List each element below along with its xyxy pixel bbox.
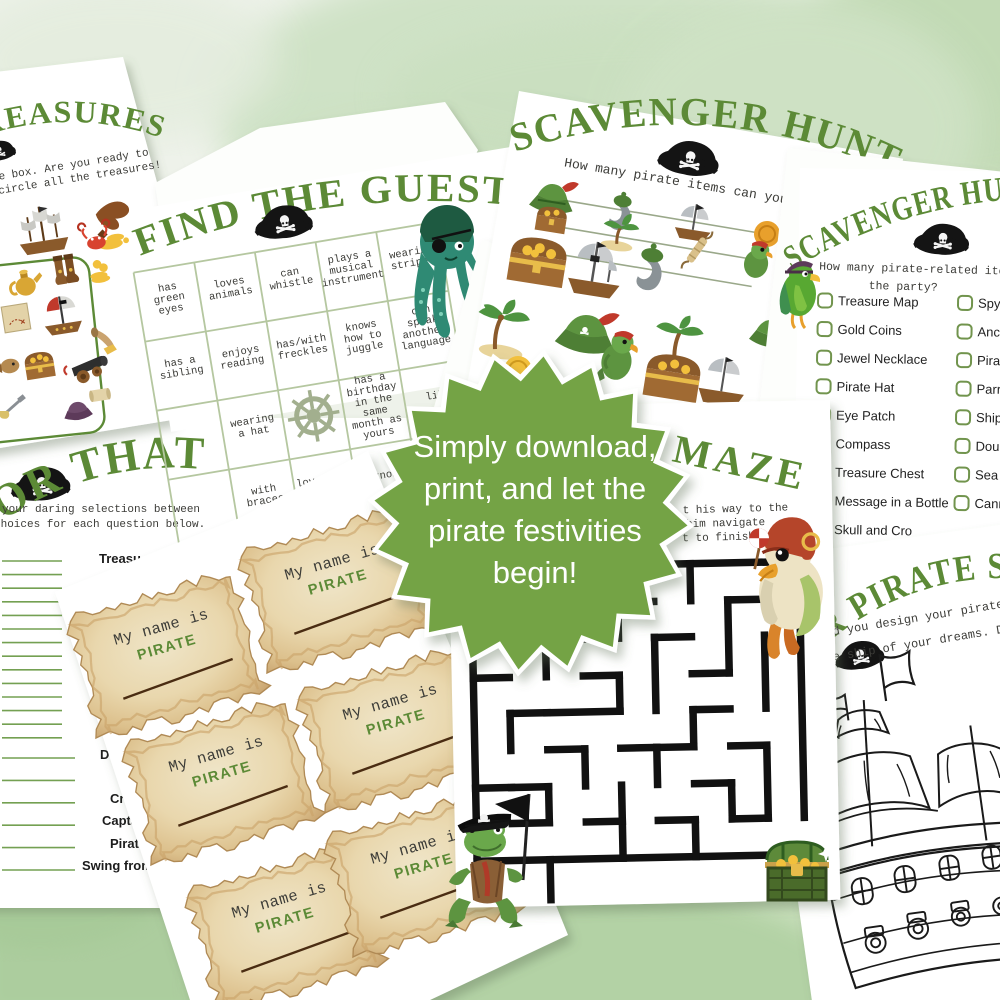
svg-text:print, and let the: print, and let the (424, 471, 646, 506)
svg-text:Eye Patch: Eye Patch (836, 408, 896, 424)
svg-text:Cannon: Cannon (974, 496, 1000, 512)
svg-text:Message in a Bottle: Message in a Bottle (834, 493, 948, 510)
svg-text:Jewel Necklace: Jewel Necklace (837, 350, 928, 367)
svg-text:the party?: the party? (869, 280, 938, 295)
svg-text:begin!: begin! (493, 555, 577, 590)
svg-text:Gold Coins: Gold Coins (837, 322, 902, 338)
svg-text:Doubloons: Doubloons (975, 439, 1000, 455)
svg-text:Skull and Cro: Skull and Cro (834, 522, 912, 538)
svg-text:pirate festivities: pirate festivities (428, 513, 642, 548)
svg-text:Pirate Hat: Pirate Hat (836, 379, 894, 395)
svg-text:Pirate Flag: Pirate Flag (977, 353, 1000, 369)
svg-text:Sea Shells: Sea Shells (975, 467, 1000, 483)
svg-text:Treasure Map: Treasure Map (838, 293, 919, 309)
svg-text:Parrot: Parrot (976, 381, 1000, 397)
svg-text:Anchor: Anchor (977, 324, 1000, 340)
svg-text:your daring selections between: your daring selections between (2, 504, 200, 516)
svg-text:Treasure Chest: Treasure Chest (835, 465, 925, 482)
svg-text:Ship's Wheel: Ship's Wheel (976, 410, 1000, 426)
svg-text:Spyglass: Spyglass (978, 296, 1000, 312)
svg-text:Simply download,: Simply download, (414, 429, 657, 464)
svg-text:him navigate: him navigate (686, 517, 766, 531)
svg-text:Compass: Compass (835, 436, 891, 452)
